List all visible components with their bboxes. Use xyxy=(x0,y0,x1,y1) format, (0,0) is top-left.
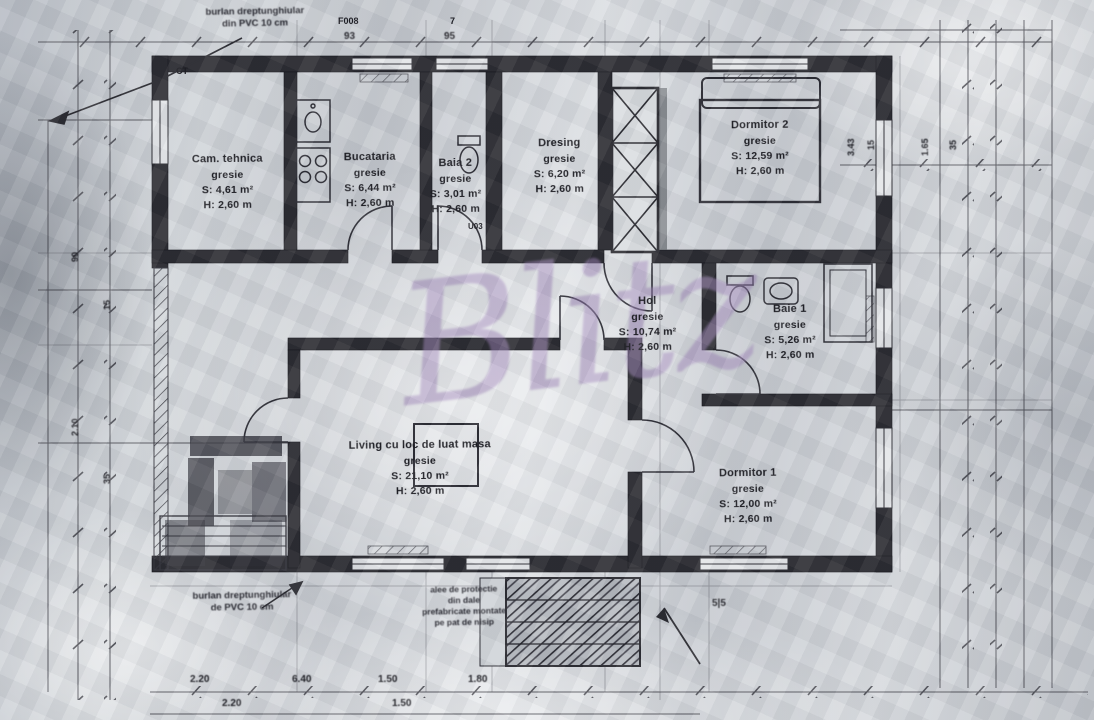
downspout-note-top: burlan dreptunghiular din PVC 10 cm xyxy=(170,5,340,33)
ct-marker: CT xyxy=(176,66,188,76)
washbasin-icon-baie1 xyxy=(764,278,798,304)
room-name: Dormitor 2 xyxy=(706,117,814,134)
room-name: Dormitor 1 xyxy=(692,465,804,482)
dim-label-rotated: 15 xyxy=(866,140,876,150)
room-finish: gresie xyxy=(692,481,804,497)
room-name: Dresing xyxy=(512,136,607,153)
room-finish: gresie xyxy=(170,167,285,183)
dim-label: 2.20 xyxy=(222,698,241,709)
room-height: H: 2,60 m xyxy=(330,483,510,500)
room-finish: gresie xyxy=(740,317,840,333)
dim-label: 6.40 xyxy=(292,674,311,685)
window-dim: 93 xyxy=(344,31,355,42)
dim-label: 1.50 xyxy=(378,674,397,685)
room-area: S: 10,74 m² xyxy=(600,325,695,341)
room-label-dormitor2: Dormitor 2 gresie S: 12,59 m² H: 2,60 m xyxy=(706,117,815,180)
dim-label-rotated: 35 xyxy=(948,140,958,150)
dim-label: 1.50 xyxy=(392,698,411,709)
note-line: pe pat de nisip xyxy=(406,616,522,629)
room-label-cam-tehnica: Cam. tehnica gresie S: 4,61 m² H: 2,60 m xyxy=(170,151,286,214)
dim-label: 1.80 xyxy=(468,674,487,685)
window-code: F008 xyxy=(338,16,359,26)
downspout-note-bottom: burlan dreptunghiular de PVC 10 cm xyxy=(162,589,322,616)
room-label-dormitor1: Dormitor 1 gresie S: 12,00 m² H: 2,60 m xyxy=(692,465,805,528)
room-area: S: 5,26 m² xyxy=(740,333,840,349)
room-name: Hol xyxy=(600,294,695,311)
room-name: Baie 1 xyxy=(740,301,840,318)
floor-plan-scan: Blitz Cam. tehnica gresie S: 4,61 m² H: … xyxy=(0,0,1094,720)
bed-dormitor2 xyxy=(702,78,820,108)
direction-arrow xyxy=(656,608,669,623)
room-height: H: 2,60 m xyxy=(740,348,840,364)
room-area: S: 12,00 m² xyxy=(692,497,804,513)
window-dim: 95 xyxy=(444,31,455,42)
room-label-hol: Hol gresie S: 10,74 m² H: 2,60 m xyxy=(600,294,696,357)
room-finish: gresie xyxy=(706,133,814,149)
room-label-living: Living cu loc de luat masa gresie S: 21,… xyxy=(330,437,511,500)
room-area: S: 4,61 m² xyxy=(170,183,285,199)
room-name: Baia 2 xyxy=(408,156,503,173)
room-name: Living cu loc de luat masa xyxy=(330,437,510,455)
dim-label-rotated: 15 xyxy=(102,300,112,310)
room-label-baie1: Baie 1 gresie S: 5,26 m² H: 2,60 m xyxy=(740,301,841,364)
ventilation-shaft xyxy=(612,88,658,252)
room-finish: gresie xyxy=(512,151,607,167)
steps-note: alee de protectie din dale prefabricate … xyxy=(406,583,523,629)
window-mark: 7 xyxy=(450,16,455,26)
room-label-dresing: Dresing gresie S: 6,20 m² H: 2,60 m xyxy=(512,136,608,199)
room-height: H: 2,60 m xyxy=(512,182,607,198)
steps-dimension: 5|5 xyxy=(712,598,726,609)
room-label-baie2: Baia 2 gresie S: 3,01 m² H: 2,60 m xyxy=(408,156,504,219)
room-height: H: 2,60 m xyxy=(408,202,503,218)
room-finish: gresie xyxy=(408,171,503,187)
porch xyxy=(154,268,286,570)
sofa-sketch xyxy=(188,436,286,526)
room-area: S: 12,59 m² xyxy=(706,149,814,165)
dim-label-rotated: 2.10 xyxy=(70,418,80,436)
room-area: S: 3,01 m² xyxy=(408,187,503,203)
dim-label-rotated: 3.43 xyxy=(846,138,856,156)
sink-icon xyxy=(296,100,330,142)
room-height: H: 2,60 m xyxy=(692,512,804,528)
room-area: S: 6,20 m² xyxy=(512,167,607,183)
room-finish: gresie xyxy=(600,309,695,325)
room-height: H: 2,60 m xyxy=(706,164,814,180)
room-height: H: 2,60 m xyxy=(170,198,285,214)
dim-label-rotated: 35 xyxy=(102,474,112,484)
door-code: U03 xyxy=(468,222,483,231)
room-name: Cam. tehnica xyxy=(170,151,285,168)
dim-label-rotated: 90 xyxy=(70,252,80,262)
dim-label: 2.20 xyxy=(190,674,209,685)
dim-label-rotated: 1.65 xyxy=(920,138,930,156)
room-height: H: 2,60 m xyxy=(600,340,695,356)
